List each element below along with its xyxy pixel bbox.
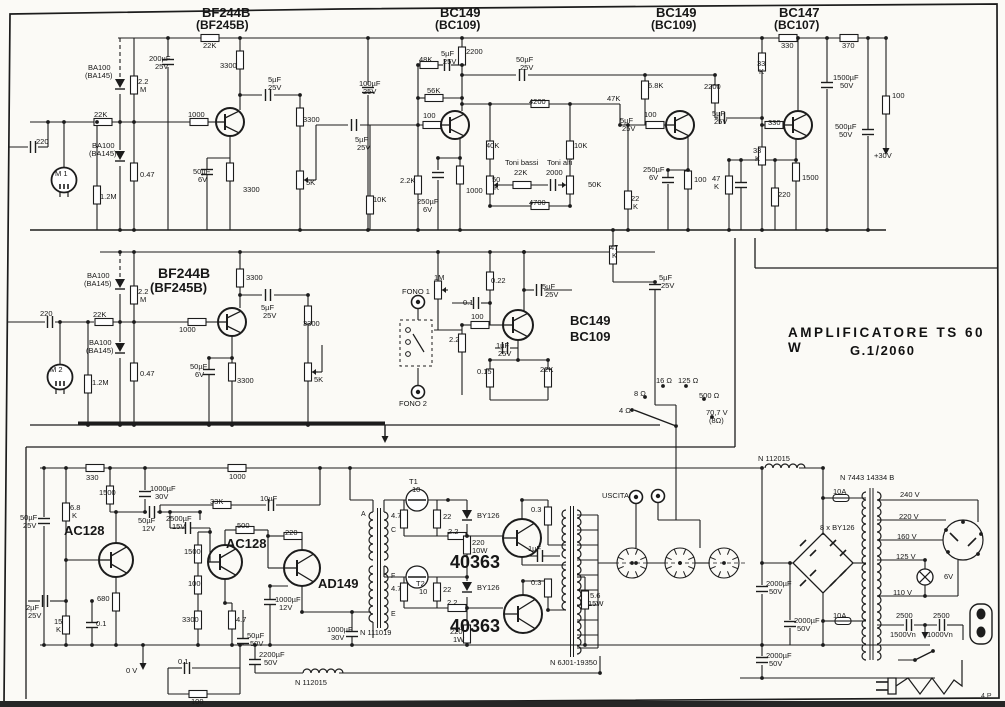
power-amplifier-label: K: [56, 626, 61, 634]
power-amplifier-label: 1000: [229, 473, 246, 481]
power-amplifier-label: 0.1: [96, 620, 106, 628]
power-amplifier-label: A: [361, 511, 366, 518]
preamp-channel-2-label: M: [140, 296, 146, 304]
preamp-channel-1-label: 100: [423, 112, 436, 120]
preamp-channel-1-label: 25V: [357, 144, 370, 152]
phono-stage-label: BC109: [570, 330, 610, 343]
phono-stage-label: BC149: [570, 314, 610, 327]
preamp-channel-1-label: 56K: [427, 87, 440, 95]
power-supply-label: 2500: [896, 612, 913, 620]
preamp-channel-2-label: 220: [40, 310, 53, 318]
output-selector-label: 125 Ω: [678, 377, 698, 385]
output-selector-label: 500 Ω: [699, 392, 719, 400]
power-amplifier-label: 2.2: [448, 528, 458, 536]
preamp-channel-1-label: 10K: [574, 142, 587, 150]
power-amplifier-label: 30V: [155, 493, 168, 501]
preamp-channel-1-label: 25V: [622, 125, 635, 133]
preamp-channel-1-label: 3300: [220, 62, 237, 70]
preamp-channel-2-label: (BF245B): [150, 281, 207, 294]
power-supply-label: N 7443 14334 B: [840, 474, 894, 482]
preamp-channel-1-label: 4700: [529, 199, 546, 207]
power-amplifier-label: 100: [188, 580, 201, 588]
power-amplifier-label: F: [391, 573, 395, 580]
preamp-channel-1-label: 22K: [514, 169, 527, 177]
preamp-channel-1-label: 220: [778, 191, 791, 199]
power-amplifier-label: N 6J01-19350: [550, 659, 597, 667]
preamp-channel-1-label: 25V: [443, 58, 456, 66]
phono-stage-label: 25V: [545, 291, 558, 299]
power-supply-label: 125 V: [896, 553, 916, 561]
phono-stage-label: FONO 1: [402, 288, 430, 296]
preamp-channel-2-label: 25V: [263, 312, 276, 320]
preamp-channel-1-label: 3300: [243, 186, 260, 194]
phono-stage-label: 25V: [498, 350, 511, 358]
preamp-channel-1-label: 100: [644, 111, 657, 119]
preamp-channel-2-label: 0.47: [140, 370, 155, 378]
preamp-channel-1-label: (BC109): [435, 19, 480, 31]
preamp-channel-1-label: 220: [36, 138, 49, 146]
power-amplifier-label: AC128: [226, 537, 266, 550]
schematic-code: G.1/2060: [850, 343, 916, 358]
preamp-channel-1-label: (BA145): [85, 72, 113, 80]
power-amplifier-label: 100: [191, 698, 204, 706]
preamp-channel-2-label: (BA145): [84, 280, 112, 288]
power-amplifier-label: 15V: [172, 523, 185, 531]
power-amplifier-label: 3300: [182, 616, 199, 624]
phono-stage-label: 25V: [661, 282, 674, 290]
preamp-channel-1-label: 22K: [94, 111, 107, 119]
power-amplifier-label: N 112015: [295, 679, 327, 687]
power-amplifier-label: 4.7: [391, 512, 401, 520]
power-amplifier-label: BY126: [477, 512, 500, 520]
preamp-channel-1-label: (BA145): [89, 150, 117, 158]
preamp-channel-2-label: 1.2M: [92, 379, 109, 387]
preamp-channel-1-label: Toni bassi: [505, 159, 538, 167]
preamp-channel-1-label: 330: [768, 119, 781, 127]
power-amplifier-label: 220: [285, 529, 298, 537]
preamp-channel-1-label: 25V: [155, 63, 168, 71]
preamp-channel-1-label: 22K: [203, 42, 216, 50]
power-supply-label: 1000Vn: [927, 631, 953, 639]
preamp-channel-2-label: 3300: [303, 320, 320, 328]
preamp-channel-2-label: (BA145): [86, 347, 114, 355]
phono-stage-label: 0.22: [491, 277, 506, 285]
phono-stage-label: 22K: [540, 366, 553, 374]
phono-stage-label: 0.15: [477, 368, 492, 376]
preamp-channel-2-label: M 2: [50, 366, 63, 374]
power-supply-label: 2500: [933, 612, 950, 620]
phono-stage-label: FONO 2: [399, 400, 427, 408]
power-amplifier-label: 1500: [99, 489, 116, 497]
power-amplifier-label: 1W: [453, 636, 464, 644]
phono-stage-label: K: [612, 252, 617, 260]
scan-edge-strip: [0, 701, 1005, 707]
preamp-channel-1-label: 25V: [714, 118, 727, 126]
preamp-channel-1-label: 370: [842, 42, 855, 50]
preamp-channel-1-label: 2200: [704, 83, 721, 91]
preamp-channel-2-label: BF244B: [158, 266, 210, 280]
power-amplifier-label: 10µF: [260, 495, 277, 503]
preamp-channel-1-label: 330: [781, 42, 794, 50]
power-amplifier-label: 330: [86, 474, 99, 482]
power-amplifier-label: BY126: [477, 584, 500, 592]
output-selector-label: 4 Ω: [619, 407, 631, 415]
power-supply-label: 8 x BY126: [820, 524, 855, 532]
phono-stage-label: 1M: [434, 274, 444, 282]
page-mark: 4.P: [981, 693, 992, 700]
preamp-channel-1-label: M 1: [55, 170, 68, 178]
preamp-channel-2-label: 3300: [246, 274, 263, 282]
power-amplifier-label: 4.7: [391, 585, 401, 593]
preamp-channel-1-label: 3300: [303, 116, 320, 124]
power-supply-label: 6V: [944, 573, 953, 581]
phono-stage-label: 0.1: [463, 299, 473, 307]
preamp-channel-2-label: 5K: [314, 376, 323, 384]
power-amplifier-label: 33K: [210, 498, 223, 506]
power-amplifier-label: AD149: [318, 577, 358, 590]
power-amplifier-label: 1µF: [528, 545, 541, 553]
preamp-channel-1-label: 50K: [588, 181, 601, 189]
schematic-canvas: AMPLIFICATORE TS 60 W G.1/2060 4.P BF244…: [0, 0, 1005, 707]
output-selector-label: (8Ω): [709, 417, 724, 425]
preamp-channel-1-label: K: [759, 68, 764, 76]
power-supply-label: 1500Vn: [890, 631, 916, 639]
preamp-channel-1-label: 2.2K: [400, 177, 415, 185]
preamp-channel-1-label: 40K: [486, 142, 499, 150]
power-supply-label: 110 V: [893, 589, 912, 597]
preamp-channel-1-label: Toni alti: [547, 159, 572, 167]
preamp-channel-2-label: 22K: [93, 311, 106, 319]
preamp-channel-1-label: 10K: [373, 196, 386, 204]
phono-stage-label: 2.2: [449, 336, 459, 344]
power-amplifier-label: 25V: [23, 522, 36, 530]
power-supply-label: 10A: [833, 612, 846, 620]
preamp-channel-2-label: 3300: [237, 377, 254, 385]
preamp-channel-1-label: (BC107): [774, 19, 819, 31]
power-supply-label: 50V: [769, 660, 782, 668]
power-amplifier-label: N 111019: [360, 629, 391, 637]
power-supply-label: 240 V: [900, 491, 920, 499]
power-supply-label: N 112015: [758, 455, 790, 463]
preamp-channel-1-label: K: [714, 183, 719, 191]
power-amplifier-label: 15W: [588, 600, 603, 608]
preamp-channel-1-label: +30V: [874, 152, 892, 160]
power-amplifier-label: 12V: [279, 604, 292, 612]
preamp-channel-1-label: K: [633, 203, 638, 211]
power-amplifier-label: 4.7: [236, 616, 246, 624]
power-amplifier-label: 0 V: [126, 667, 137, 675]
preamp-channel-1-label: 0.47: [140, 171, 155, 179]
preamp-channel-1-label: 100: [694, 176, 707, 184]
preamp-channel-1-label: 6V: [649, 174, 658, 182]
preamp-channel-1-label: 100: [892, 92, 905, 100]
power-amplifier-label: AC128: [64, 524, 104, 537]
preamp-channel-1-label: 6.8K: [648, 82, 663, 90]
preamp-channel-1-label: 25V: [520, 64, 533, 72]
power-amplifier-label: 10W: [472, 547, 487, 555]
power-amplifier-label: 2.2: [447, 599, 457, 607]
output-selector-label: 8 Ω: [634, 390, 646, 398]
preamp-channel-1-label: M: [140, 86, 146, 94]
preamp-channel-1-label: (BF245B): [196, 19, 249, 31]
power-amplifier-label: 22: [443, 513, 451, 521]
output-selector-label: 16 Ω: [656, 377, 672, 385]
preamp-channel-1-label: 1000: [466, 187, 483, 195]
preamp-channel-1-label: 6V: [198, 176, 207, 184]
power-amplifier-label: E: [391, 611, 396, 618]
power-amplifier-label: 500: [237, 522, 250, 530]
preamp-channel-1-label: 50V: [840, 82, 853, 90]
power-amplifier-label: K: [72, 512, 77, 520]
preamp-channel-1-label: 25V: [363, 88, 376, 96]
power-amplifier-label: 40363: [450, 553, 500, 571]
power-amplifier-label: 22: [443, 586, 451, 594]
power-supply-label: 50V: [769, 588, 782, 596]
preamp-channel-1-label: 4200: [529, 98, 546, 106]
power-amplifier-label: 25V: [28, 612, 41, 620]
preamp-channel-1-label: 2200: [466, 48, 483, 56]
power-amplifier-label: 1500: [184, 548, 201, 556]
power-amplifier-label: 12V: [142, 525, 155, 533]
preamp-channel-2-label: 1000: [179, 326, 196, 334]
power-supply-label: 220 V: [899, 513, 919, 521]
preamp-channel-1-label: K: [755, 155, 760, 163]
power-amplifier-label: USCITA: [602, 492, 629, 500]
power-supply-label: 160 V: [897, 533, 917, 541]
power-amplifier-label: 50V: [250, 640, 263, 648]
preamp-channel-1-label: (BC109): [651, 19, 696, 31]
preamp-channel-1-label: 2000: [546, 169, 563, 177]
preamp-channel-1-label: 1.2M: [100, 193, 117, 201]
phono-stage-label: 100: [471, 313, 484, 321]
preamp-channel-1-label: 50V: [839, 131, 852, 139]
preamp-channel-1-label: 1500: [802, 174, 819, 182]
preamp-channel-1-label: 25V: [268, 84, 281, 92]
power-amplifier-label: C: [391, 527, 396, 534]
power-amplifier-label: 0.3: [531, 579, 541, 587]
power-amplifier-label: 30V: [331, 634, 344, 642]
preamp-channel-1-label: 1000: [188, 111, 205, 119]
power-amplifier-label: 0.1: [178, 658, 188, 666]
power-amplifier-label: 680: [97, 595, 110, 603]
power-amplifier-label: 50V: [264, 659, 277, 667]
preamp-channel-1-label: K: [494, 184, 499, 192]
power-supply-label: 50V: [797, 625, 810, 633]
preamp-channel-1-label: 6V: [423, 206, 432, 214]
preamp-channel-1-label: 47K: [607, 95, 620, 103]
power-supply-label: 10A: [833, 488, 846, 496]
preamp-channel-1-label: 5K: [306, 179, 315, 187]
power-amplifier-label: 10: [419, 588, 427, 596]
preamp-channel-2-label: 6V: [195, 371, 204, 379]
power-amplifier-label: 0.3: [531, 506, 541, 514]
preamp-channel-1-label: 48K: [419, 56, 432, 64]
power-amplifier-label: 10: [412, 486, 420, 494]
